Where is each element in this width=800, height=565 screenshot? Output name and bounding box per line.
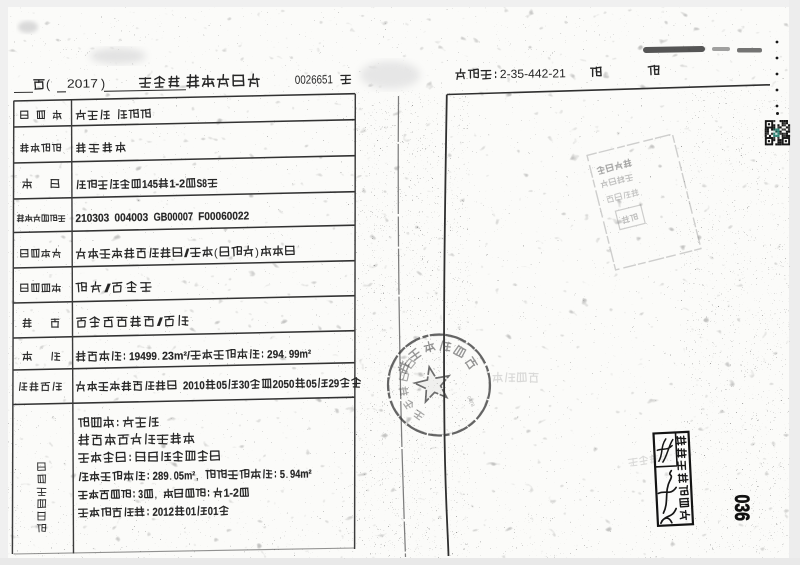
svg-text:94m²: 94m²: [290, 468, 312, 480]
svg-text:30: 30: [239, 379, 250, 391]
svg-text:F00060022: F00060022: [198, 210, 249, 223]
svg-text:2050: 2050: [273, 379, 295, 391]
svg-text:294: 294: [267, 349, 284, 361]
svg-text:289: 289: [153, 471, 169, 483]
svg-text:.: .: [285, 469, 288, 481]
svg-text:2012: 2012: [152, 507, 174, 519]
svg-text:,: ,: [196, 470, 199, 482]
svg-text:145: 145: [142, 179, 158, 191]
svg-text:23m²/: 23m²/: [162, 350, 191, 362]
svg-text:2-35-442-21: 2-35-442-21: [500, 66, 566, 81]
svg-text:01: 01: [185, 506, 196, 518]
svg-text:0026651: 0026651: [295, 72, 333, 86]
svg-text:05m²: 05m²: [174, 470, 196, 482]
svg-text:(: (: [214, 247, 218, 259]
svg-text:2010: 2010: [183, 380, 205, 392]
svg-text:,: ,: [154, 489, 157, 501]
svg-text:3: 3: [138, 489, 143, 501]
svg-text:GB00007: GB00007: [153, 211, 193, 224]
svg-text:29: 29: [328, 378, 339, 390]
svg-text:01: 01: [208, 506, 219, 518]
svg-text:1-2: 1-2: [223, 488, 238, 500]
svg-text:19499: 19499: [129, 351, 157, 363]
svg-text:210303: 210303: [75, 212, 109, 225]
svg-text:036: 036: [730, 495, 754, 522]
svg-text:004003: 004003: [114, 212, 148, 225]
svg-text:): ): [255, 247, 259, 259]
svg-text:): ): [101, 77, 105, 91]
svg-text:2017: 2017: [67, 76, 99, 90]
svg-text:.: .: [169, 471, 172, 483]
svg-text:.: .: [157, 351, 160, 363]
svg-text:99m²: 99m²: [289, 348, 312, 360]
svg-text:1-2: 1-2: [169, 178, 185, 190]
svg-text:05: 05: [306, 378, 317, 390]
svg-text:S8: S8: [196, 178, 207, 190]
svg-text:05: 05: [216, 380, 227, 392]
svg-text:.: .: [284, 349, 287, 361]
